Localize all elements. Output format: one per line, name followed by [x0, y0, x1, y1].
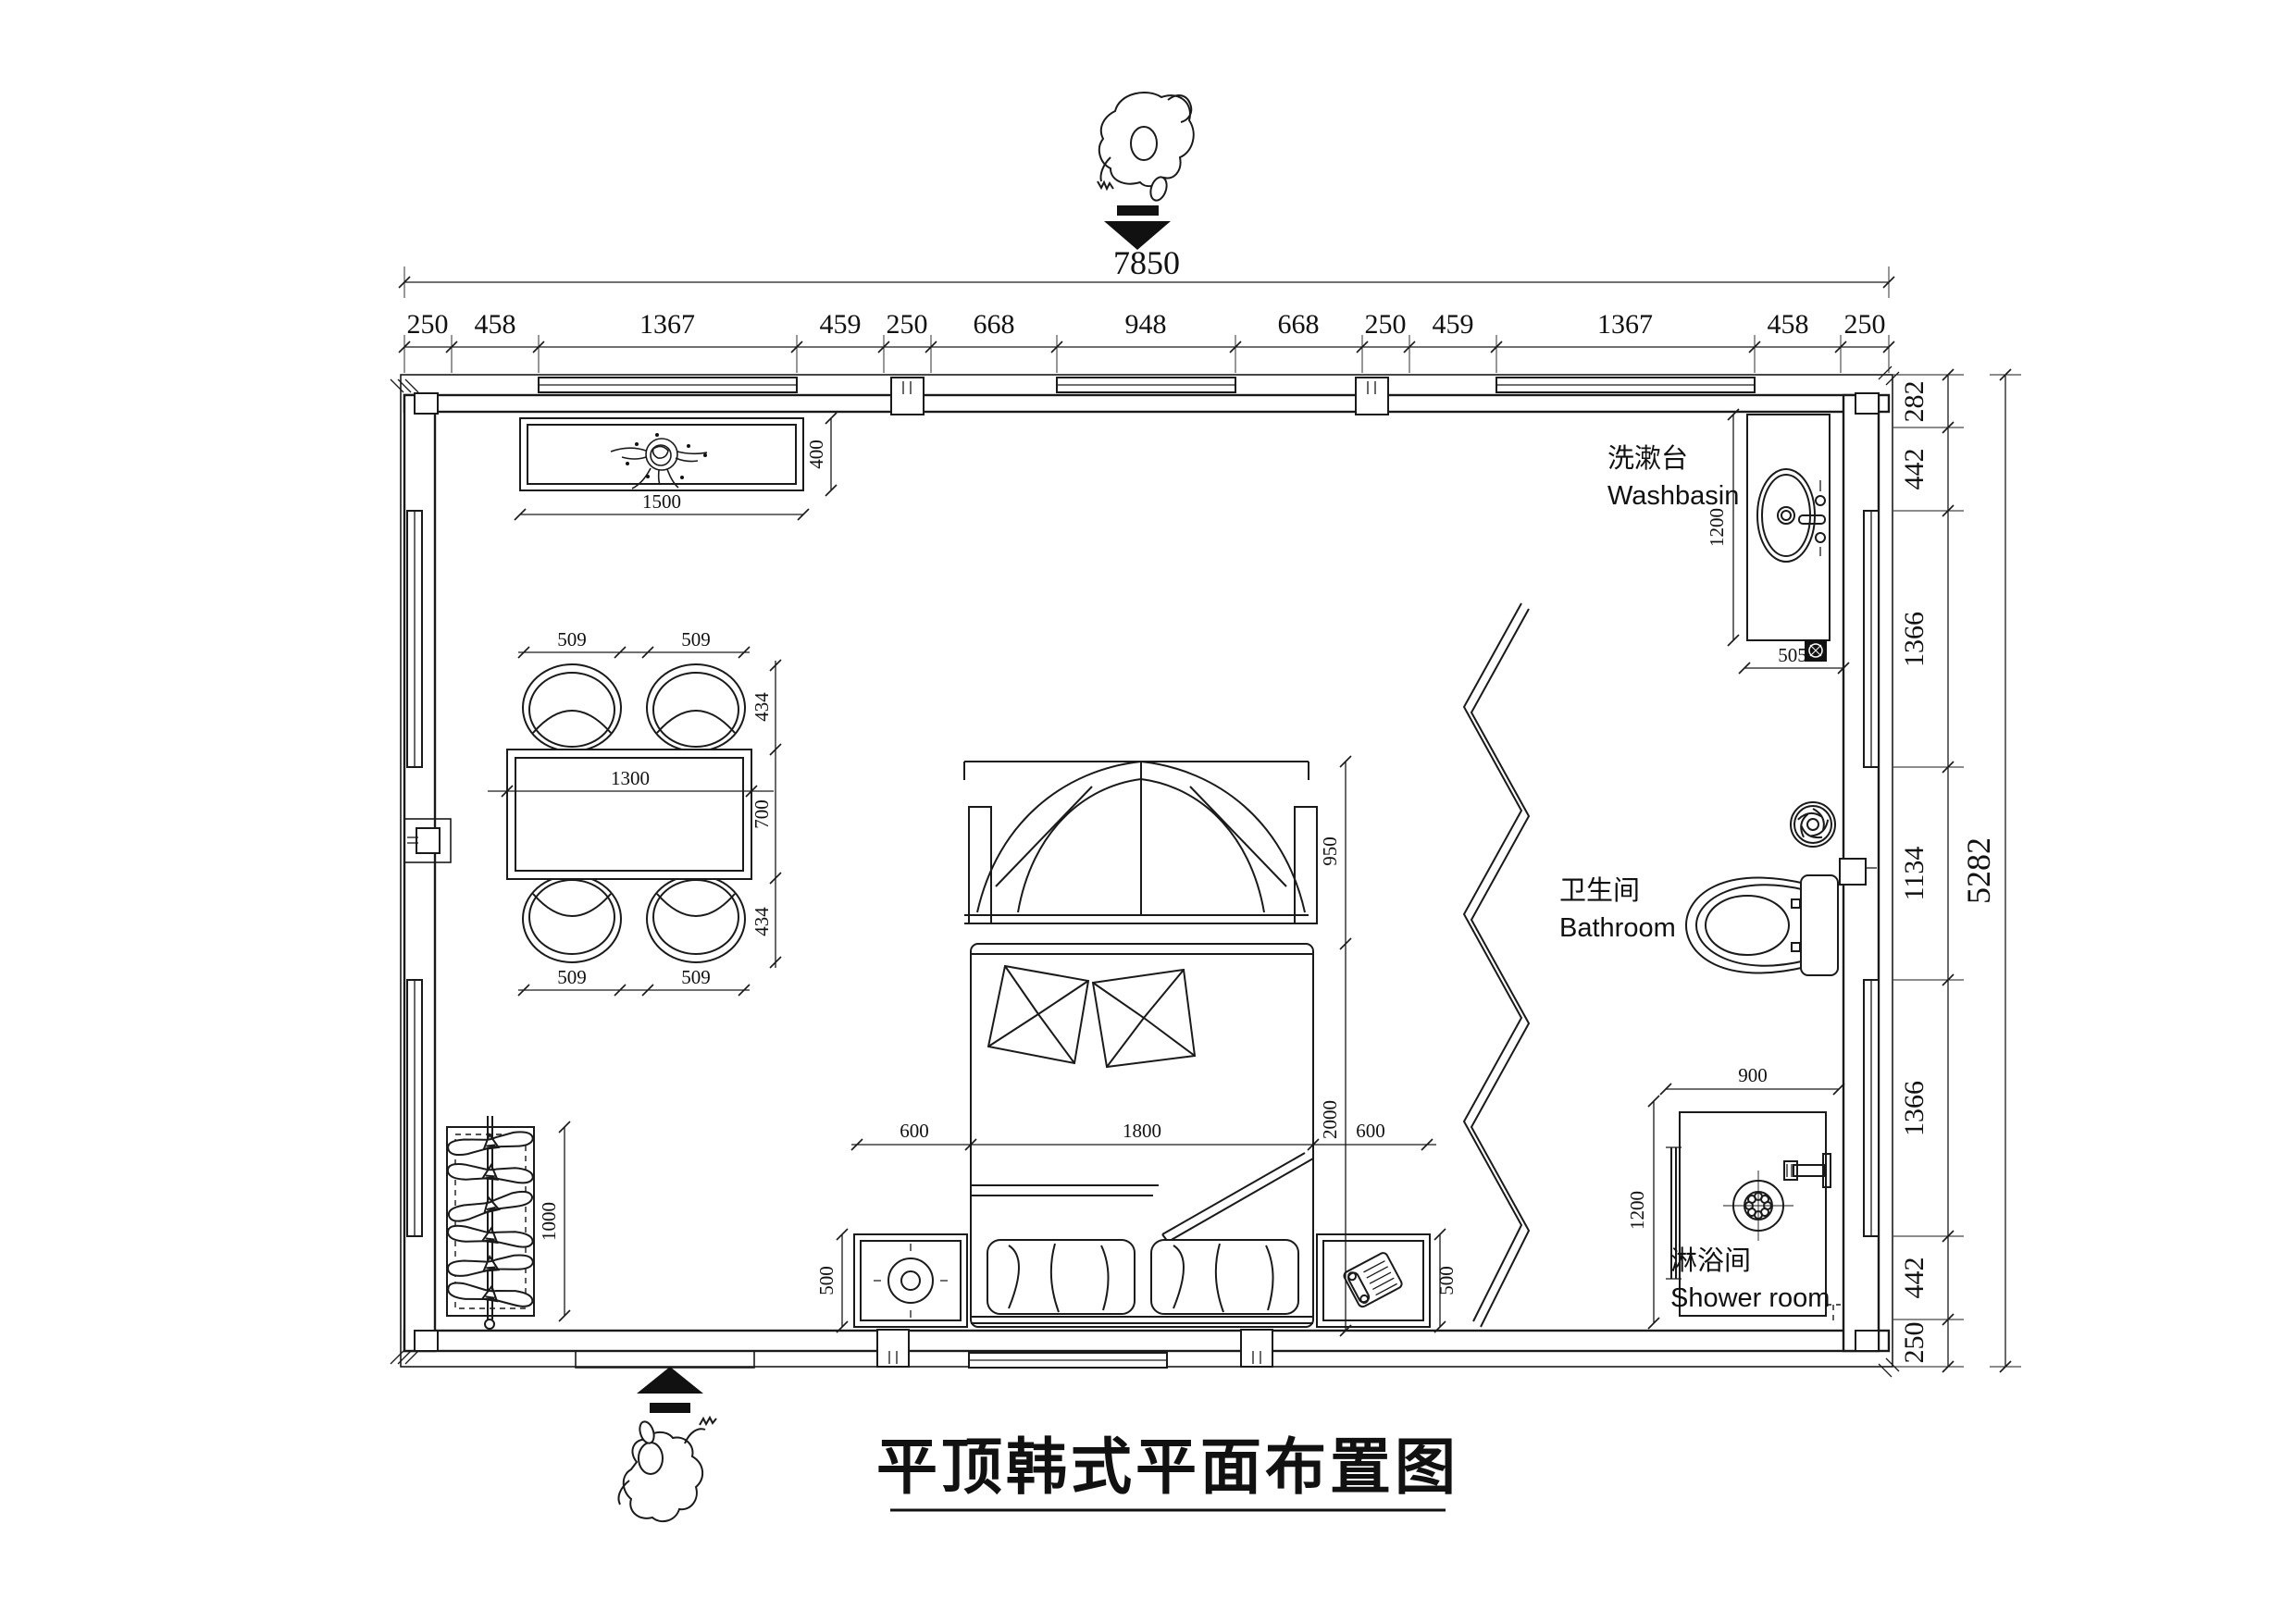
dim-bed-width: 1800 — [1123, 1120, 1161, 1142]
dim-chair-width: 509 — [681, 966, 711, 988]
room-label-bathroom-zh: 卫生间 — [1559, 875, 1640, 906]
dim-top-seg: 458 — [1768, 309, 1809, 340]
dim-shower-width: 900 — [1738, 1064, 1768, 1086]
dim-nightstand-depth: 500 — [1435, 1266, 1458, 1295]
dining-chair — [647, 664, 745, 751]
dim-bed-side: 600 — [1356, 1120, 1385, 1142]
right-dimension-chain: 5282 282 442 1366 1134 1366 442 250 — [1893, 369, 2021, 1372]
zigzag-screen — [1464, 603, 1529, 1327]
dim-right-seg: 1366 — [1899, 1081, 1930, 1136]
dim-chair-depth: 434 — [751, 907, 773, 936]
dim-top-seg: 668 — [1278, 309, 1320, 340]
dim-top-seg: 1367 — [1597, 309, 1653, 340]
dim-washbasin-width: 505 — [1778, 644, 1807, 666]
room-label-washbasin-zh: 洗漱台 — [1607, 443, 1688, 474]
shower-drain-icon — [1723, 1171, 1793, 1241]
entry-arrow-bottom — [637, 1367, 703, 1413]
bed-pillow — [1151, 1240, 1298, 1314]
washbasin-counter: 1200 505 洗漱台 Washbasin — [1607, 409, 1849, 674]
dim-right-seg: 282 — [1899, 381, 1930, 423]
dim-chair-width: 509 — [681, 628, 711, 650]
nightstand-left — [854, 1234, 967, 1327]
dim-right-seg: 250 — [1899, 1322, 1930, 1364]
dining-chair — [523, 664, 621, 751]
entry-arrow-top — [1104, 205, 1171, 250]
room-label-bathroom-en: Bathroom — [1559, 913, 1676, 943]
dim-chair-width: 509 — [557, 628, 587, 650]
plant-sketch-icon — [611, 433, 707, 489]
dim-right-seg: 442 — [1899, 1258, 1930, 1299]
dim-top-total: 7850 — [1113, 244, 1180, 281]
dim-bed-length: 2000 — [1319, 1100, 1341, 1139]
room-label-shower-zh: 淋浴间 — [1670, 1245, 1751, 1276]
dim-table-depth: 700 — [751, 799, 773, 829]
room-label-shower-en: Shower room — [1670, 1283, 1830, 1313]
dim-top-seg: 459 — [820, 309, 862, 340]
dim-top-seg: 250 — [1365, 309, 1407, 340]
tv-console: 1500 400 — [515, 413, 837, 520]
window-top-center — [1057, 378, 1235, 392]
dim-top-seg: 458 — [475, 309, 516, 340]
drawing-title: 平顶韩式平面布置图 — [876, 1432, 1459, 1510]
room-label-washbasin-en: Washbasin — [1607, 481, 1739, 511]
swirl-drain-icon — [1791, 802, 1835, 847]
dim-nightstand-depth: 500 — [815, 1266, 838, 1295]
bed-canopy — [964, 762, 1317, 923]
dim-top-seg: 250 — [887, 309, 928, 340]
window-right-lower — [1864, 980, 1879, 1236]
dim-canopy-depth: 950 — [1319, 836, 1341, 866]
dim-top-seg: 250 — [1844, 309, 1886, 340]
window-bottom — [969, 1353, 1167, 1368]
window-top-left — [539, 378, 797, 392]
dim-bed-side: 600 — [900, 1120, 929, 1142]
window-right-upper — [1864, 511, 1879, 767]
dim-table-width: 1300 — [611, 767, 650, 789]
dim-tv-width: 1500 — [642, 490, 681, 513]
dim-shower-depth: 1200 — [1626, 1191, 1648, 1230]
shower-cabin: 900 1200 淋浴间 Shower room — [1626, 1064, 1844, 1329]
toilet-icon — [1686, 875, 1838, 975]
window-left-lower — [407, 980, 422, 1236]
dining-table-group: 509 509 509 509 434 700 434 1300 — [488, 628, 781, 996]
wardrobe-rack: 1000 — [447, 1116, 570, 1329]
person-bottom-icon — [618, 1418, 716, 1521]
floor-plan-page: 7850 250 458 1367 459 250 668 948 668 25… — [0, 0, 2296, 1623]
dim-top-seg: 250 — [407, 309, 449, 340]
dim-top-seg: 1367 — [639, 309, 695, 340]
person-top-icon — [1098, 93, 1194, 203]
dim-right-seg: 1366 — [1899, 612, 1930, 667]
dim-right-total: 5282 — [1960, 837, 1997, 904]
dim-top-seg: 459 — [1433, 309, 1474, 340]
bed-pillow — [987, 1240, 1135, 1314]
dining-chair — [647, 875, 745, 962]
top-dimension-chain: 7850 250 458 1367 459 250 668 948 668 25… — [399, 244, 1894, 373]
window-left-upper — [407, 511, 422, 767]
shower-head-icon — [1784, 1154, 1831, 1187]
dim-tv-depth: 400 — [805, 440, 827, 469]
dining-chair — [523, 875, 621, 962]
floor-drain-icon — [1805, 639, 1827, 662]
bathroom-area: 卫生间 Bathroom — [1559, 802, 1838, 975]
window-top-right — [1496, 378, 1755, 392]
dim-chair-depth: 434 — [751, 692, 773, 722]
floor-plan-canvas: 7850 250 458 1367 459 250 668 948 668 25… — [0, 0, 2296, 1623]
dim-right-seg: 442 — [1899, 449, 1930, 490]
dim-top-seg: 668 — [974, 309, 1015, 340]
dim-right-seg: 1134 — [1899, 847, 1930, 901]
dim-wardrobe-length: 1000 — [538, 1202, 560, 1241]
dim-chair-width: 509 — [557, 966, 587, 988]
nightstand-right — [1317, 1234, 1430, 1327]
page-title: 平顶韩式平面布置图 — [876, 1432, 1459, 1501]
dim-washbasin-length: 1200 — [1706, 508, 1728, 547]
entry-step-bottom — [576, 1351, 754, 1368]
dim-top-seg: 948 — [1125, 309, 1167, 340]
